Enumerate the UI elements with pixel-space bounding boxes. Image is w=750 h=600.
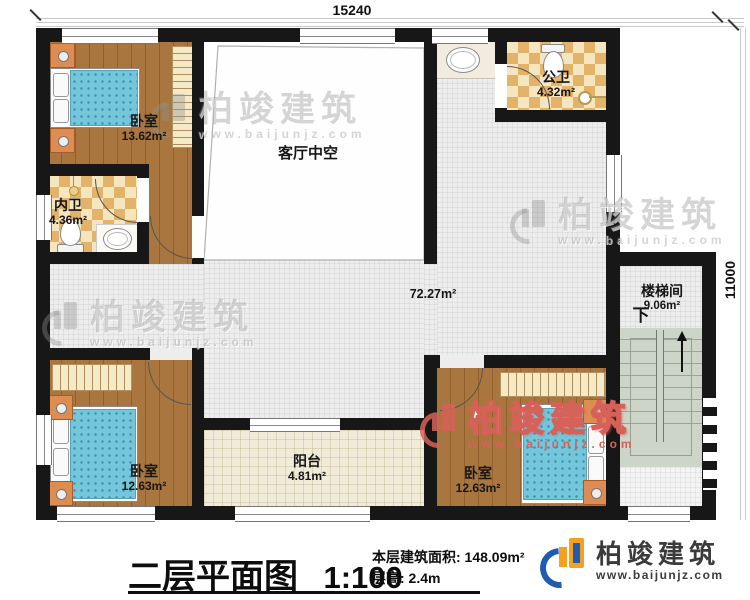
down-text: 下	[630, 306, 652, 325]
room-label-balcony: 阳台 4.81m²	[262, 454, 352, 483]
room-label-bedroom-br: 卧室 12.63m²	[432, 466, 524, 495]
nightstand	[50, 128, 75, 153]
window	[57, 506, 155, 522]
stairwell-top-wall	[606, 252, 716, 266]
brand-url: www.baijunjz.com	[596, 568, 724, 582]
stair-down-label: 下	[630, 306, 652, 325]
room-area: 12.63m²	[432, 482, 524, 495]
room-area: 4.36m²	[37, 214, 99, 227]
floor-height-line: 层高: 2.4m	[372, 568, 524, 589]
bedroom-bl-door-gap	[150, 348, 192, 360]
lamp-cord	[73, 176, 74, 186]
bed-pillow	[53, 73, 69, 97]
logo-building-bar	[559, 547, 567, 567]
window	[62, 28, 158, 44]
void-right-wall	[424, 28, 437, 264]
hallway-floor	[437, 122, 607, 355]
room-name: 卧室	[98, 114, 190, 130]
dimension-tick	[727, 19, 739, 31]
brand-logo: 柏竣建筑 www.baijunjz.com	[540, 536, 724, 586]
right-dimension-line	[745, 28, 746, 520]
bath-sink	[103, 228, 132, 250]
bed-pillow	[588, 426, 604, 454]
stairwell-opening	[606, 155, 622, 212]
right-dimension-label: 11000	[722, 250, 738, 310]
room-name: 卧室	[432, 466, 524, 482]
louver-window	[702, 398, 717, 490]
right-dimension-line	[740, 28, 741, 520]
room-label-public-bath: 公卫 4.32m²	[525, 70, 587, 99]
hallway-floor	[437, 78, 495, 122]
balcony-sliding-door	[235, 506, 370, 522]
bed-pillow	[53, 416, 69, 444]
room-label-bedroom-tl: 卧室 13.62m²	[98, 114, 190, 143]
window	[432, 28, 488, 44]
alcove-sink	[446, 47, 480, 73]
hallway-floor	[204, 258, 424, 418]
top-dimension-line	[36, 18, 744, 19]
room-name: 内卫	[37, 198, 99, 214]
hallway-floor	[424, 264, 437, 355]
stair-direction-arrow	[681, 340, 683, 372]
bed-pillow	[53, 99, 69, 123]
dimension-tick	[29, 9, 41, 21]
stair-direction-arrowhead	[677, 331, 687, 341]
room-area: 4.32m²	[525, 86, 587, 99]
room-area: 12.63m²	[98, 480, 190, 493]
nightstand	[583, 480, 608, 505]
stair-handrail	[656, 330, 664, 442]
wardrobe	[52, 364, 132, 391]
bedroom-br-door-gap	[440, 355, 484, 368]
window	[628, 506, 690, 522]
brand-logo-icon	[540, 536, 588, 586]
room-label-bedroom-bl: 卧室 12.63m²	[98, 464, 190, 493]
window	[36, 415, 52, 465]
room-area: 72.27m²	[398, 287, 468, 301]
inner-bath-top-wall	[36, 164, 149, 176]
bedroom-bl-right-wall	[192, 348, 204, 506]
brand-name: 柏竣建筑	[596, 540, 724, 569]
public-bath-door-gap	[495, 64, 507, 108]
floor-plan: 15240 11000	[0, 0, 750, 600]
build-info: 本层建筑面积: 148.09m² 层高: 2.4m	[372, 547, 524, 589]
room-area: 13.62m²	[98, 130, 190, 143]
nightstand	[583, 399, 608, 424]
top-dimension-line	[36, 22, 744, 23]
room-name: 楼梯间	[626, 284, 698, 300]
hallway-floor	[48, 264, 204, 348]
bedroom-tl-door-gap	[192, 216, 204, 258]
inner-bath-bottom-wall	[36, 252, 149, 264]
room-name: 卧室	[98, 464, 190, 480]
room-name: 公卫	[525, 70, 587, 86]
title-underline	[128, 591, 480, 594]
balcony-window	[250, 418, 340, 432]
nightstand	[48, 481, 73, 506]
room-label-hallway: 72.27m²	[398, 287, 468, 301]
outer-wall-right-mid	[606, 28, 620, 506]
wardrobe	[500, 372, 606, 397]
bed-mattress	[523, 408, 587, 500]
room-name: 阳台	[262, 454, 352, 470]
top-dimension-line	[36, 26, 744, 27]
inner-bath-door-gap	[137, 178, 149, 222]
room-label-inner-bath: 内卫 4.36m²	[37, 198, 99, 227]
floor-area-line: 本层建筑面积: 148.09m²	[372, 547, 524, 568]
nightstand	[50, 43, 75, 68]
room-name: 客厅中空	[250, 146, 366, 163]
top-dimension-label: 15240	[292, 2, 412, 18]
logo-building-bar	[573, 543, 580, 563]
bed-pillow	[53, 448, 69, 476]
ceiling-lamp	[69, 186, 79, 196]
room-label-living-void: 客厅中空	[250, 146, 366, 163]
window	[300, 28, 395, 44]
towel-bar	[589, 96, 606, 98]
public-bath-bottom-wall	[495, 110, 620, 122]
room-area: 4.81m²	[262, 470, 352, 483]
stairwell-lower-floor	[620, 467, 702, 506]
